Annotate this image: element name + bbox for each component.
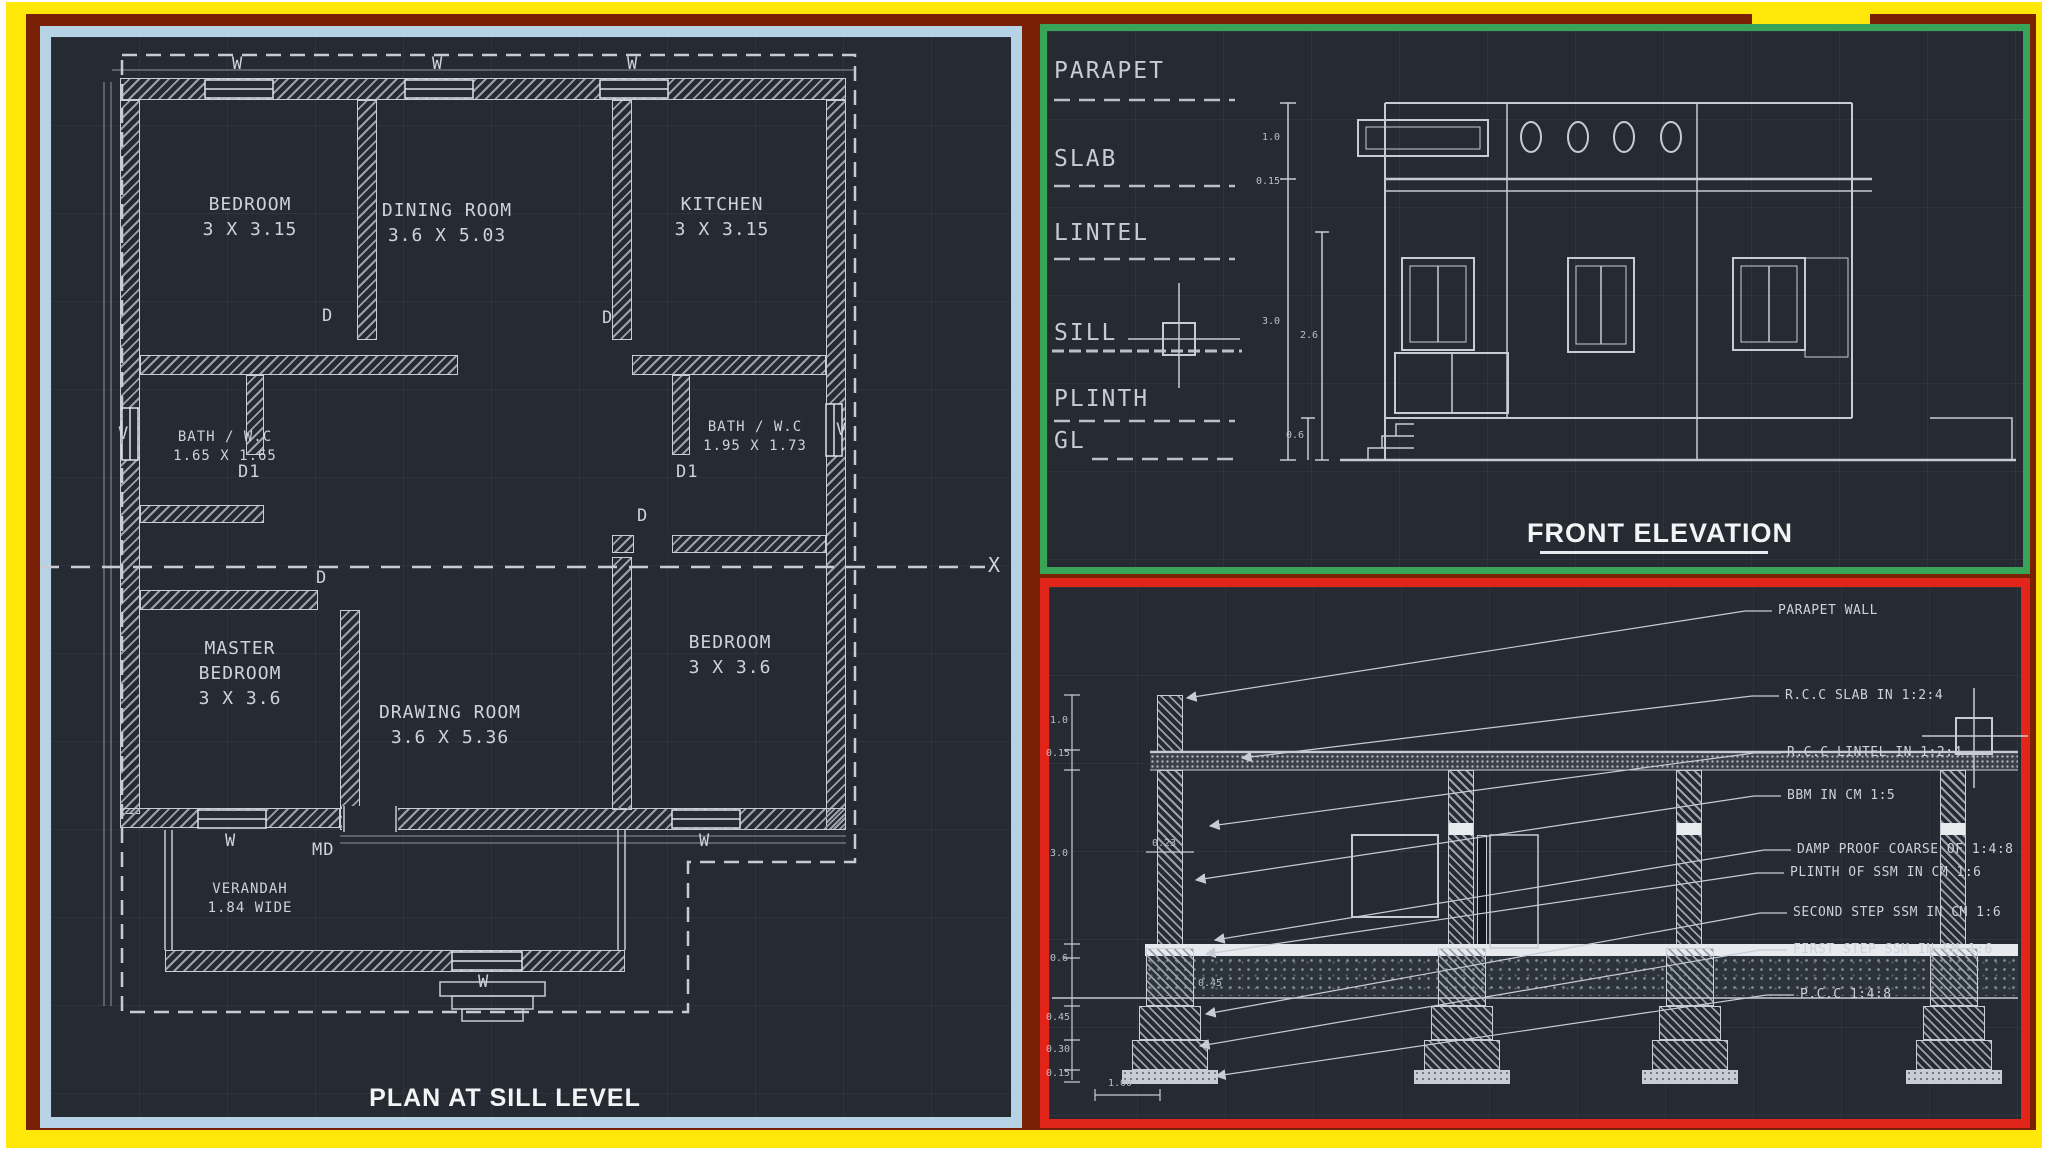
- room-label-master: MASTER BEDROOM 3 X 3.6: [175, 636, 305, 712]
- room-name: BATH / W.C: [165, 428, 285, 447]
- sec-dim-footing: 0.45: [1198, 978, 1222, 989]
- room-dims: 3.6 X 5.36: [370, 725, 530, 750]
- room-dims: 3 X 3.15: [175, 217, 325, 242]
- callout-pcc: P.C.C 1:4:8: [1800, 987, 1892, 1002]
- door-mark-d-kitchen: D: [602, 308, 613, 328]
- room-dims: 3 X 3.15: [647, 217, 797, 242]
- room-name: VERANDAH: [192, 880, 308, 899]
- room-name: MASTER BEDROOM: [175, 636, 305, 686]
- room-name: KITCHEN: [647, 192, 797, 217]
- footing1-step1: [1146, 948, 1194, 1006]
- footing1-step2: [1139, 1006, 1201, 1040]
- drawing-sheet: BEDROOM 3 X 3.15 DINING ROOM 3.6 X 5.03 …: [0, 0, 2048, 1152]
- footing2-pcc: [1414, 1070, 1510, 1084]
- window-mark-w1: W: [232, 54, 243, 74]
- plan-wall-east: [826, 100, 846, 830]
- room-dims: 3.6 X 5.03: [372, 223, 522, 248]
- footing1-pcc: [1122, 1070, 1218, 1084]
- footing1-step3: [1132, 1040, 1208, 1070]
- footing4-pcc: [1906, 1070, 2002, 1084]
- plan-wall-bed2-west: [612, 557, 632, 810]
- sec-dim-base: 1.00: [1108, 1078, 1132, 1089]
- callout-rcc-lintel: R.C.C LINTEL IN 1:2:4: [1787, 745, 1962, 760]
- room-label-kitchen: KITCHEN 3 X 3.15: [647, 192, 797, 242]
- footing3-step3: [1652, 1040, 1728, 1070]
- window-mark-w2: W: [432, 54, 443, 74]
- footing3-step2: [1659, 1006, 1721, 1040]
- section-wall-1: [1157, 770, 1183, 948]
- room-name: BEDROOM: [655, 630, 805, 655]
- door-mark-d1-bath1: D1: [238, 462, 260, 482]
- room-dims: 1.65 X 1.65: [165, 447, 285, 466]
- section-lintel-4: [1941, 823, 1965, 835]
- sec-dim-wall: 3.0: [1050, 848, 1068, 859]
- plan-wall-west: [120, 100, 140, 814]
- elevation-title-underline: [1540, 551, 1768, 554]
- vent-mark-v-left: V: [118, 424, 129, 444]
- section-door-leaf: [1477, 835, 1487, 948]
- plan-wall-bathrow-right: [632, 355, 826, 375]
- footing4-step2: [1923, 1006, 1985, 1040]
- section-wall-4: [1940, 770, 1966, 948]
- callout-first-step: FIRST STEP SSM IN CM 1:6: [1793, 942, 1993, 957]
- callout-rcc-slab: R.C.C SLAB IN 1:2:4: [1785, 688, 1943, 703]
- sec-dim-plinth: 0.6: [1050, 953, 1068, 964]
- level-label-sill: SILL: [1054, 320, 1117, 346]
- footing2-step1: [1438, 948, 1486, 1006]
- room-name: DRAWING ROOM: [370, 700, 530, 725]
- plan-wall-north: [120, 78, 846, 100]
- plan-wall-south-main: [340, 808, 846, 830]
- level-label-lintel: LINTEL: [1054, 220, 1149, 246]
- footing3-pcc: [1642, 1070, 1738, 1084]
- level-label-slab: SLAB: [1054, 146, 1117, 172]
- plan-wall-bath2-south: [672, 535, 826, 553]
- plan-wall-hall-stub: [612, 535, 634, 553]
- window-mark-w-verandah: W: [478, 972, 489, 992]
- sec-dim-step1: 0.45: [1046, 1012, 1070, 1023]
- sec-dim-slab: 0.15: [1046, 748, 1070, 759]
- section-lintel-2: [1449, 823, 1473, 835]
- footing3-step1: [1666, 948, 1714, 1006]
- level-label-plinth: PLINTH: [1054, 386, 1149, 412]
- sec-dim-step3: 0.15: [1046, 1068, 1070, 1079]
- footing2-step3: [1424, 1040, 1500, 1070]
- plan-wall-bathrow-left: [140, 355, 458, 375]
- plan-wall-master-east: [340, 610, 360, 808]
- plan-wall-verandah-front: [165, 950, 625, 972]
- callout-parapet-wall: PARAPET WALL: [1778, 603, 1878, 618]
- door-mark-md: MD: [312, 840, 334, 860]
- room-name: BATH / W.C: [695, 418, 815, 437]
- room-label-bath2: BATH / W.C 1.95 X 1.73: [695, 418, 815, 456]
- section-wall-2: [1448, 770, 1474, 948]
- room-dims: 1.84 WIDE: [192, 899, 308, 918]
- elev-dim-sill: 2.6: [1300, 330, 1318, 341]
- door-mark-d-master: D: [316, 568, 327, 588]
- room-label-verandah: VERANDAH 1.84 WIDE: [192, 880, 308, 918]
- plan-wall-bath2-west: [672, 375, 690, 455]
- room-label-bedroom2: BEDROOM 3 X 3.6: [655, 630, 805, 680]
- callout-second-step: SECOND STEP SSM IN CM 1:6: [1793, 905, 2001, 920]
- door-mark-d1-bath2: D1: [676, 462, 698, 482]
- room-dims: 3 X 3.6: [175, 686, 305, 711]
- callout-bbm: BBM IN CM 1:5: [1787, 788, 1895, 803]
- plan-wall-bath1-south: [140, 505, 264, 523]
- sec-dim-parapet: 1.0: [1050, 715, 1068, 726]
- elevation-title: FRONT ELEVATION: [1500, 518, 1820, 549]
- plan-wall-south-master: [120, 808, 340, 828]
- plan-wall-master-north: [140, 590, 318, 610]
- callout-damp-proof: DAMP PROOF COARSE OF 1:4:8: [1797, 842, 2014, 857]
- level-label-gl: GL: [1054, 428, 1086, 454]
- vent-mark-v-right: V: [836, 420, 847, 440]
- room-name: DINING ROOM: [372, 198, 522, 223]
- elev-dim-plinth: 0.6: [1286, 430, 1304, 441]
- room-label-dining: DINING ROOM 3.6 X 5.03: [372, 198, 522, 248]
- room-dims: 1.95 X 1.73: [695, 437, 815, 456]
- elevation-canvas: [1047, 31, 2023, 567]
- window-mark-w-master: W: [225, 831, 236, 851]
- room-label-drawing: DRAWING ROOM 3.6 X 5.36: [370, 700, 530, 750]
- plan-title: PLAN AT SILL LEVEL: [355, 1084, 655, 1113]
- room-label-bath1: BATH / W.C 1.65 X 1.65: [165, 428, 285, 466]
- section-lintel-3: [1677, 823, 1701, 835]
- elev-dim-parapet: 1.0: [1262, 132, 1280, 143]
- room-name: BEDROOM: [175, 192, 325, 217]
- plan-partition-dining-kitchen: [612, 100, 632, 340]
- section-mark-x: X: [988, 553, 1001, 577]
- window-mark-w-bedroom2: W: [699, 831, 710, 851]
- elev-dim-slab: 0.15: [1256, 176, 1280, 187]
- section-parapet-wall: [1157, 695, 1183, 752]
- sec-dim-step2: 0.30: [1046, 1044, 1070, 1055]
- footing2-step2: [1431, 1006, 1493, 1040]
- elev-dim-wall: 3.0: [1262, 316, 1280, 327]
- room-label-bedroom1: BEDROOM 3 X 3.15: [175, 192, 325, 242]
- level-label-parapet: PARAPET: [1054, 58, 1165, 84]
- section-wall-3: [1676, 770, 1702, 948]
- sec-dim-thk: 0.23: [1152, 838, 1176, 849]
- callout-plinth-ssm: PLINTH OF SSM IN CM 1:6: [1790, 865, 1982, 880]
- window-mark-w3: W: [627, 54, 638, 74]
- footing4-step3: [1916, 1040, 1992, 1070]
- room-dims: 3 X 3.6: [655, 655, 805, 680]
- door-mark-d-hall: D: [637, 506, 648, 526]
- door-mark-d-bedroom1: D: [322, 306, 333, 326]
